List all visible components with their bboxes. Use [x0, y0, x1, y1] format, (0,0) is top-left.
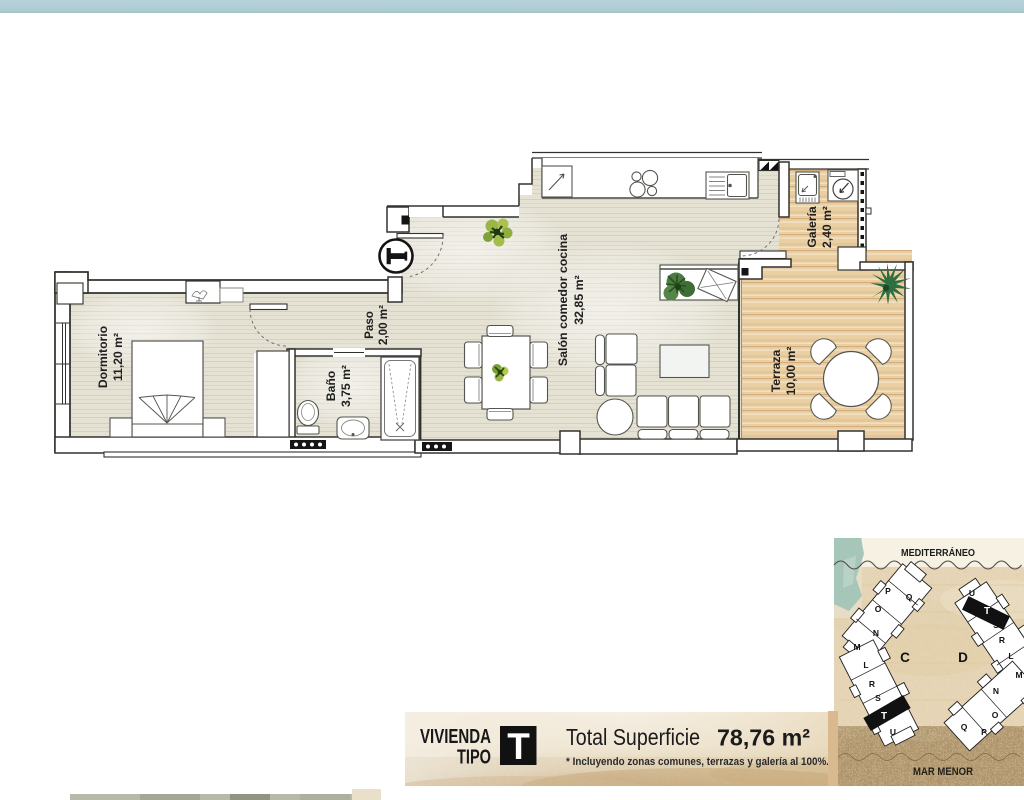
- svg-text:TIPO: TIPO: [457, 746, 491, 769]
- svg-text:78,76 m²: 78,76 m²: [717, 725, 810, 751]
- svg-text:Dormitorio: Dormitorio: [96, 326, 110, 388]
- svg-text:32,85 m²: 32,85 m²: [572, 275, 586, 325]
- svg-text:P: P: [981, 727, 987, 737]
- svg-text:R: R: [999, 635, 1005, 645]
- svg-text:U: U: [890, 727, 896, 737]
- svg-text:M: M: [1015, 670, 1022, 680]
- svg-text:11,20 m²: 11,20 m²: [111, 333, 125, 381]
- svg-text:T: T: [881, 711, 887, 722]
- svg-text:N: N: [873, 628, 879, 638]
- svg-text:Salón comedor cocina: Salón comedor cocina: [556, 234, 570, 366]
- svg-text:10,00 m²: 10,00 m²: [784, 347, 798, 396]
- svg-text:T: T: [984, 606, 990, 617]
- svg-text:D: D: [958, 650, 968, 665]
- svg-text:L: L: [863, 660, 868, 670]
- svg-text:M: M: [853, 642, 860, 652]
- svg-text:O: O: [875, 604, 882, 614]
- svg-text:O: O: [992, 710, 999, 720]
- svg-text:L: L: [1008, 651, 1013, 661]
- svg-text:3,75 m²: 3,75 m²: [339, 365, 353, 407]
- svg-text:MAR MENOR: MAR MENOR: [913, 766, 973, 778]
- svg-text:MEDITERRÁNEO: MEDITERRÁNEO: [901, 546, 975, 559]
- svg-text:Galería: Galería: [805, 206, 819, 248]
- svg-text:* Incluyendo zonas comunes, te: * Incluyendo zonas comunes, terrazas y g…: [566, 756, 829, 768]
- svg-text:Q: Q: [906, 592, 913, 602]
- svg-text:S: S: [993, 620, 999, 630]
- svg-text:U: U: [969, 588, 975, 598]
- svg-text:Total Superficie: Total Superficie: [566, 724, 700, 750]
- svg-text:2,40 m²: 2,40 m²: [820, 206, 834, 248]
- svg-text:R: R: [869, 679, 875, 689]
- svg-text:Paso: Paso: [363, 311, 376, 339]
- svg-text:Q: Q: [961, 722, 968, 732]
- svg-text:Terraza: Terraza: [769, 350, 783, 393]
- svg-text:T: T: [507, 726, 530, 767]
- svg-text:P: P: [885, 586, 891, 596]
- svg-text:N: N: [993, 686, 999, 696]
- svg-text:C: C: [900, 650, 910, 665]
- svg-text:Baño: Baño: [324, 371, 338, 401]
- svg-text:2,00 m²: 2,00 m²: [377, 305, 390, 345]
- svg-text:S: S: [875, 693, 881, 703]
